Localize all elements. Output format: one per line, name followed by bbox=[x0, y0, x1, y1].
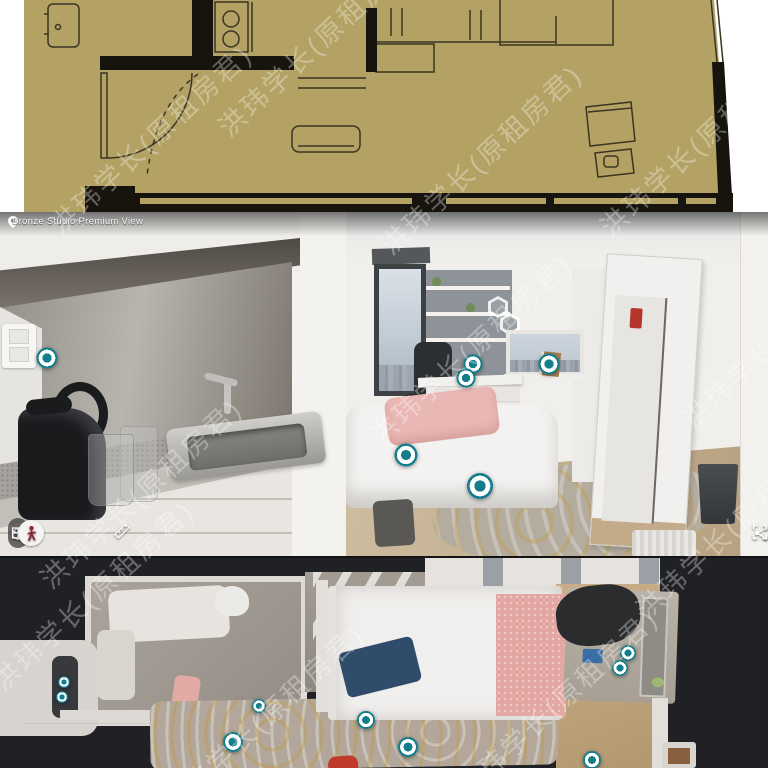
floorplan-drawing bbox=[0, 0, 768, 212]
radiator bbox=[632, 530, 696, 558]
fire-blanket-reflection bbox=[629, 308, 642, 329]
tour-viewer-section[interactable]: Bronze Studio Premium View bbox=[0, 212, 768, 558]
desk-topview bbox=[563, 588, 679, 704]
desk-item bbox=[582, 649, 602, 664]
drinking-glass bbox=[88, 434, 134, 506]
mid-wall bbox=[366, 8, 377, 72]
nav-dot[interactable] bbox=[620, 645, 636, 661]
toilet-topview bbox=[215, 586, 249, 616]
right-wall bbox=[740, 212, 768, 558]
nav-dot[interactable] bbox=[223, 732, 243, 752]
nav-dot[interactable] bbox=[357, 711, 375, 729]
walk-person-icon bbox=[25, 525, 38, 541]
nav-dot[interactable] bbox=[56, 691, 68, 703]
location-label: Bronze Studio Premium View bbox=[12, 216, 143, 227]
plant bbox=[432, 277, 441, 286]
nav-dot[interactable] bbox=[583, 751, 601, 768]
waste-bin bbox=[696, 464, 740, 524]
nav-dot[interactable] bbox=[539, 354, 560, 375]
nav-dot[interactable] bbox=[398, 737, 418, 757]
light-switch bbox=[2, 324, 36, 368]
floorplan-paper bbox=[24, 0, 731, 212]
bed-base bbox=[372, 499, 415, 548]
red-object bbox=[328, 755, 359, 768]
mirror bbox=[589, 253, 703, 550]
plant bbox=[466, 303, 475, 312]
shelf bbox=[422, 286, 510, 290]
floorplan-section bbox=[0, 0, 768, 212]
measure-icon bbox=[112, 521, 132, 541]
nav-dot[interactable] bbox=[37, 348, 58, 369]
nav-dot[interactable] bbox=[612, 660, 628, 676]
nav-dot[interactable] bbox=[467, 473, 493, 499]
window-blind bbox=[372, 247, 431, 265]
entry-furniture bbox=[662, 742, 696, 768]
dollhouse-section[interactable] bbox=[0, 558, 768, 768]
mirror-door-reflection bbox=[602, 295, 668, 524]
hall-wall bbox=[192, 0, 213, 70]
bed-topview bbox=[328, 586, 562, 720]
view-mode-toolbar bbox=[8, 518, 28, 548]
location-bar: Bronze Studio Premium View bbox=[0, 212, 768, 236]
chair-topview bbox=[553, 581, 643, 649]
fullscreen-icon bbox=[752, 524, 768, 540]
nav-dot[interactable] bbox=[252, 699, 266, 713]
walk-view-button[interactable] bbox=[18, 520, 44, 546]
screenshot-root: Bronze Studio Premium View bbox=[0, 0, 768, 768]
nav-dot[interactable] bbox=[58, 676, 70, 688]
nav-dot[interactable] bbox=[395, 444, 418, 467]
sink-topview bbox=[97, 630, 135, 700]
pillow-topview bbox=[338, 635, 423, 698]
nav-dot[interactable] bbox=[457, 369, 476, 388]
bed-wall bbox=[316, 580, 328, 712]
